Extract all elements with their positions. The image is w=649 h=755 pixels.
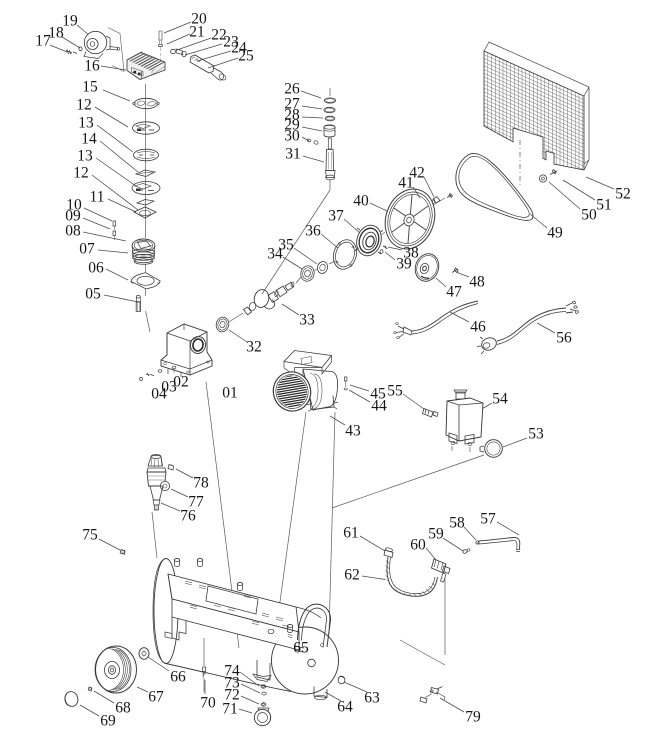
svg-text:36: 36 [305, 223, 321, 240]
svg-text:65: 65 [293, 640, 309, 657]
svg-text:58: 58 [449, 515, 465, 532]
svg-text:68: 68 [115, 700, 131, 717]
svg-text:70: 70 [200, 695, 216, 712]
svg-text:04: 04 [151, 386, 167, 403]
svg-text:63: 63 [364, 690, 380, 707]
svg-text:32: 32 [246, 339, 262, 356]
svg-text:79: 79 [465, 709, 481, 726]
svg-text:16: 16 [84, 58, 100, 75]
svg-text:49: 49 [547, 225, 563, 242]
svg-text:57: 57 [480, 511, 496, 528]
svg-text:13: 13 [77, 148, 93, 165]
svg-text:69: 69 [100, 713, 116, 730]
svg-text:14: 14 [81, 131, 97, 148]
svg-text:07: 07 [79, 241, 95, 258]
svg-text:48: 48 [469, 274, 485, 291]
svg-text:19: 19 [62, 13, 78, 30]
svg-text:52: 52 [615, 186, 631, 203]
svg-text:54: 54 [492, 391, 508, 408]
svg-text:64: 64 [337, 699, 353, 716]
svg-text:12: 12 [76, 97, 92, 114]
svg-text:42: 42 [409, 165, 425, 182]
svg-text:47: 47 [446, 284, 462, 301]
svg-text:35: 35 [278, 237, 294, 254]
svg-text:08: 08 [65, 223, 81, 240]
svg-text:06: 06 [88, 260, 104, 277]
svg-text:62: 62 [344, 567, 360, 584]
svg-text:31: 31 [285, 146, 301, 163]
svg-text:21: 21 [189, 24, 205, 41]
svg-text:55: 55 [387, 383, 403, 400]
svg-text:77: 77 [188, 494, 204, 511]
svg-text:11: 11 [90, 189, 105, 206]
svg-text:67: 67 [148, 689, 164, 706]
svg-text:50: 50 [581, 207, 597, 224]
svg-text:25: 25 [238, 48, 254, 65]
svg-text:01: 01 [222, 385, 238, 402]
svg-text:10: 10 [66, 197, 82, 214]
svg-text:05: 05 [85, 286, 101, 303]
svg-text:37: 37 [328, 208, 344, 225]
svg-text:75: 75 [82, 527, 98, 544]
svg-text:56: 56 [556, 330, 572, 347]
svg-text:13: 13 [78, 115, 94, 132]
svg-text:45: 45 [370, 386, 386, 403]
svg-text:61: 61 [343, 525, 359, 542]
svg-text:74: 74 [224, 663, 240, 680]
svg-text:66: 66 [170, 669, 186, 686]
svg-text:46: 46 [470, 319, 486, 336]
svg-text:53: 53 [528, 426, 544, 443]
svg-text:59: 59 [428, 526, 444, 543]
svg-text:40: 40 [353, 193, 369, 210]
svg-text:15: 15 [82, 79, 98, 96]
svg-text:51: 51 [596, 197, 612, 214]
svg-text:33: 33 [299, 312, 315, 329]
svg-text:78: 78 [193, 475, 209, 492]
svg-text:39: 39 [396, 256, 412, 273]
svg-text:12: 12 [73, 165, 89, 182]
svg-text:60: 60 [410, 537, 426, 554]
svg-text:30: 30 [284, 128, 300, 145]
svg-text:43: 43 [345, 423, 361, 440]
